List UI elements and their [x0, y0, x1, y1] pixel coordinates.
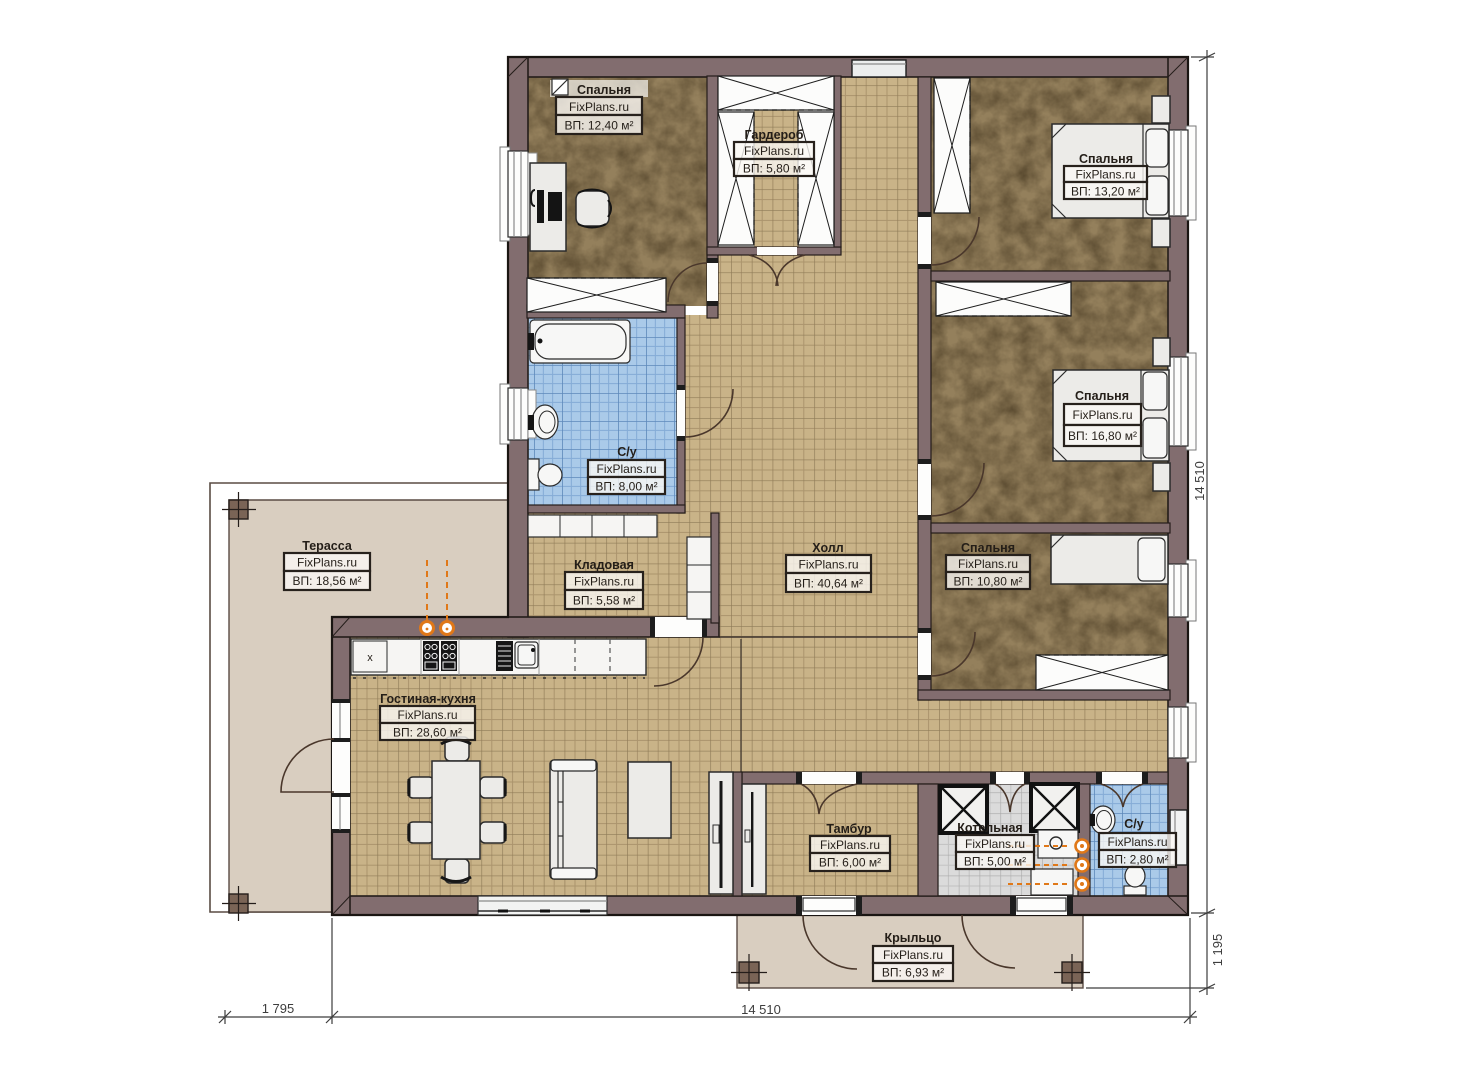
svg-text:Крыльцо: Крыльцо [885, 931, 942, 945]
svg-text:С/у: С/у [617, 445, 637, 459]
svg-text:FixPlans.ru: FixPlans.ru [1075, 168, 1135, 182]
svg-text:FixPlans.ru: FixPlans.ru [744, 144, 804, 158]
svg-text:ВП: 16,80 м²: ВП: 16,80 м² [1068, 429, 1137, 443]
svg-text:ВП: 12,40 м²: ВП: 12,40 м² [565, 119, 634, 133]
svg-text:Спальня: Спальня [1079, 152, 1133, 166]
svg-text:FixPlans.ru: FixPlans.ru [596, 462, 656, 476]
svg-text:ВП: 2,80 м²: ВП: 2,80 м² [1106, 853, 1168, 867]
svg-text:Холл: Холл [812, 541, 843, 555]
svg-text:ВП: 10,80 м²: ВП: 10,80 м² [954, 575, 1023, 589]
svg-text:ВП: 5,80 м²: ВП: 5,80 м² [743, 162, 805, 176]
svg-text:Тамбур: Тамбур [826, 822, 872, 836]
svg-text:Гардероб: Гардероб [744, 128, 803, 142]
svg-text:FixPlans.ru: FixPlans.ru [798, 558, 858, 572]
svg-text:С/у: С/у [1124, 817, 1144, 831]
svg-text:Котельная: Котельная [957, 821, 1022, 835]
svg-text:FixPlans.ru: FixPlans.ru [965, 837, 1025, 851]
svg-text:FixPlans.ru: FixPlans.ru [958, 557, 1018, 571]
svg-text:ВП: 5,58 м²: ВП: 5,58 м² [573, 594, 635, 608]
svg-text:14 510: 14 510 [1192, 461, 1207, 501]
svg-text:FixPlans.ru: FixPlans.ru [569, 100, 629, 114]
svg-text:FixPlans.ru: FixPlans.ru [820, 838, 880, 852]
svg-text:Кладовая: Кладовая [574, 558, 634, 572]
svg-text:FixPlans.ru: FixPlans.ru [1072, 408, 1132, 422]
svg-text:ВП: 8,00 м²: ВП: 8,00 м² [595, 480, 657, 494]
svg-text:ВП: 6,93 м²: ВП: 6,93 м² [882, 966, 944, 980]
svg-text:Терасса: Терасса [302, 539, 353, 553]
svg-text:FixPlans.ru: FixPlans.ru [397, 708, 457, 722]
svg-text:Спальня: Спальня [961, 541, 1015, 555]
svg-text:ВП: 5,00 м²: ВП: 5,00 м² [964, 855, 1026, 869]
svg-text:Гостиная-кухня: Гостиная-кухня [380, 692, 476, 706]
svg-text:ВП: 13,20 м²: ВП: 13,20 м² [1071, 185, 1140, 199]
svg-text:ВП: 18,56 м²: ВП: 18,56 м² [293, 574, 362, 588]
svg-text:1 195: 1 195 [1210, 934, 1225, 967]
svg-text:FixPlans.ru: FixPlans.ru [883, 948, 943, 962]
svg-text:Спальня: Спальня [577, 83, 631, 97]
svg-text:x: x [367, 652, 373, 664]
svg-text:ВП: 40,64 м²: ВП: 40,64 м² [794, 577, 863, 591]
svg-text:FixPlans.ru: FixPlans.ru [574, 575, 634, 589]
svg-text:FixPlans.ru: FixPlans.ru [297, 556, 357, 570]
svg-text:ВП: 6,00 м²: ВП: 6,00 м² [819, 856, 881, 870]
svg-text:1 795: 1 795 [262, 1001, 295, 1016]
svg-text:ВП: 28,60 м²: ВП: 28,60 м² [393, 726, 462, 740]
svg-text:FixPlans.ru: FixPlans.ru [1107, 835, 1167, 849]
svg-text:Спальня: Спальня [1075, 389, 1129, 403]
svg-text:14 510: 14 510 [741, 1002, 781, 1017]
